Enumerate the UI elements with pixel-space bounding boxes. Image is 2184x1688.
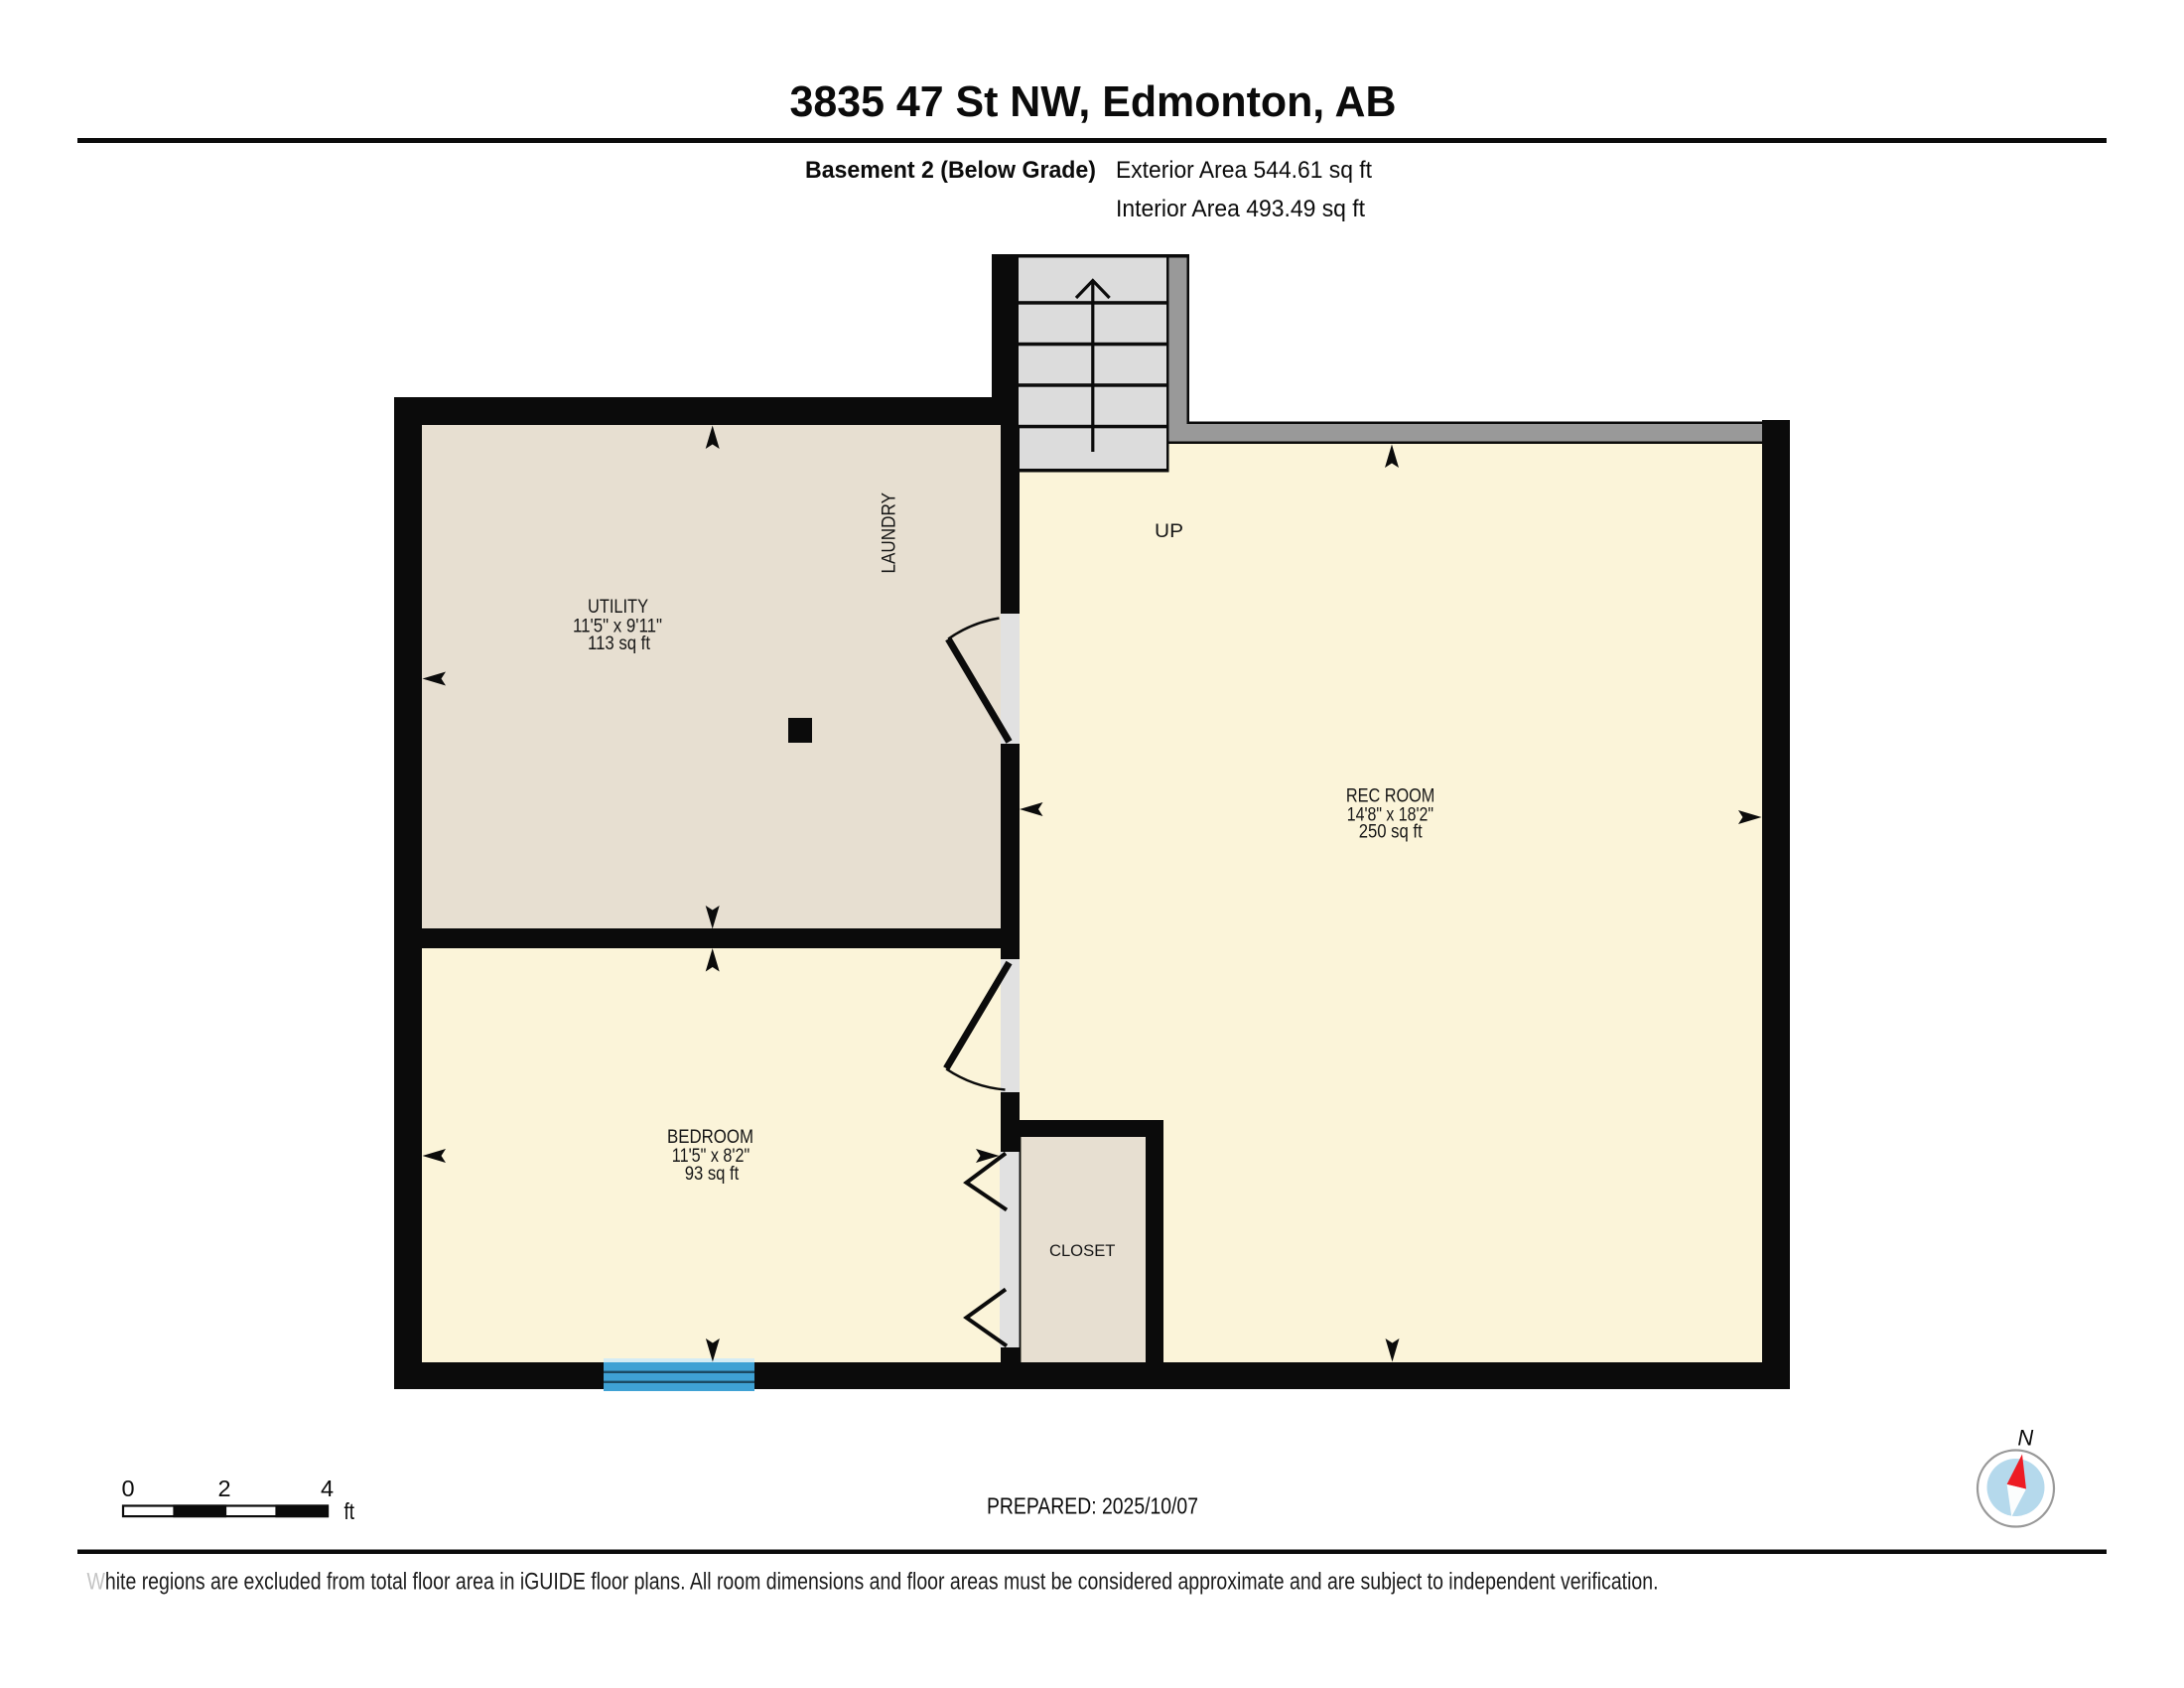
svg-text:93 sq ft: 93 sq ft <box>685 1164 740 1185</box>
svg-text:UP: UP <box>1155 521 1183 542</box>
svg-text:CLOSET: CLOSET <box>1049 1241 1116 1260</box>
svg-text:2: 2 <box>217 1476 230 1501</box>
svg-text:N: N <box>2017 1426 2033 1451</box>
svg-text:White regions are excluded fro: White regions are excluded from total fl… <box>87 1568 1659 1595</box>
svg-text:113 sq ft: 113 sq ft <box>588 633 651 654</box>
svg-text:Exterior Area 544.61 sq ft: Exterior Area 544.61 sq ft <box>1116 157 1372 184</box>
svg-text:UTILITY: UTILITY <box>588 597 648 618</box>
svg-text:Basement 2 (Below Grade): Basement 2 (Below Grade) <box>805 157 1096 184</box>
svg-text:LAUNDRY: LAUNDRY <box>880 492 900 574</box>
svg-text:0: 0 <box>121 1476 134 1501</box>
svg-text:ft: ft <box>344 1498 355 1524</box>
svg-text:3835 47 St NW, Edmonton, AB: 3835 47 St NW, Edmonton, AB <box>790 77 1397 126</box>
svg-text:PREPARED: 2025/10/07: PREPARED: 2025/10/07 <box>987 1493 1198 1519</box>
svg-text:Interior Area 493.49 sq ft: Interior Area 493.49 sq ft <box>1116 196 1365 222</box>
svg-text:4: 4 <box>321 1476 334 1501</box>
svg-text:250 sq ft: 250 sq ft <box>1359 822 1424 843</box>
svg-text:REC ROOM: REC ROOM <box>1346 786 1434 807</box>
